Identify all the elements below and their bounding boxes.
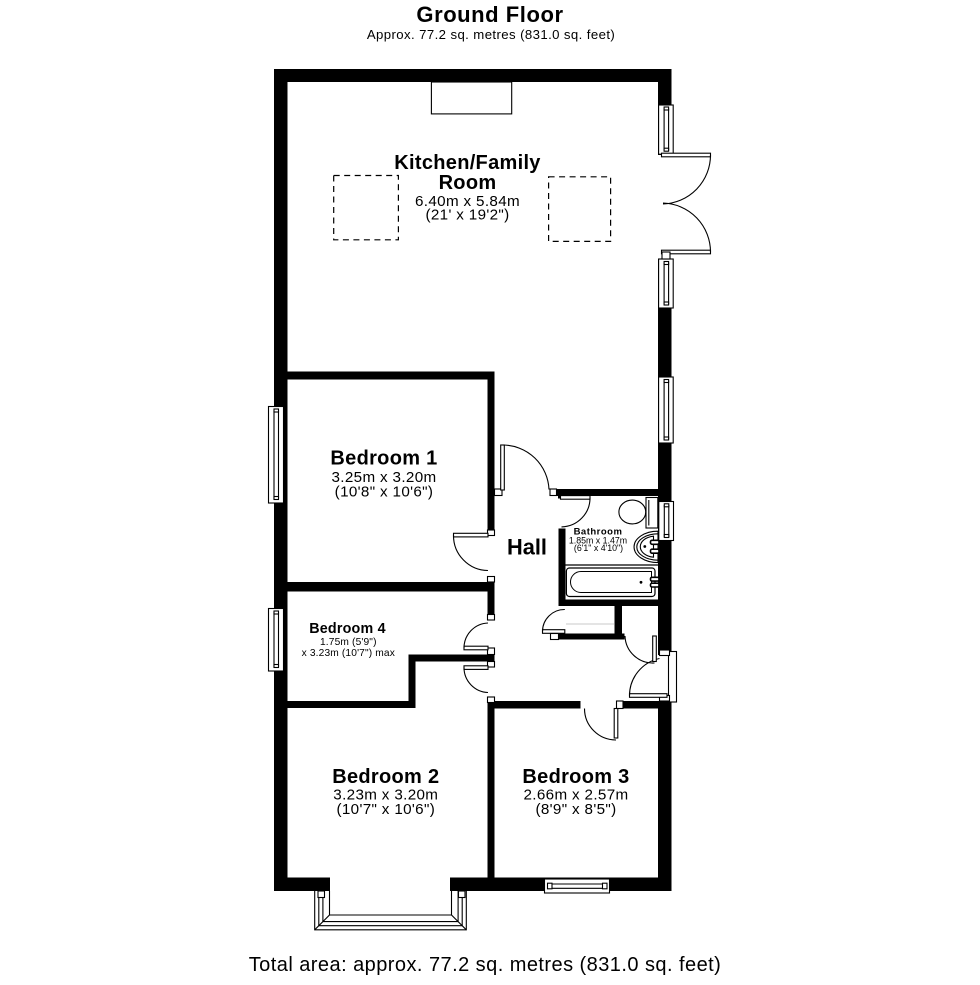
svg-text:(10'8" x 10'6"): (10'8" x 10'6") xyxy=(335,483,434,500)
svg-text:1.75m (5'9"): 1.75m (5'9") xyxy=(320,637,377,648)
svg-text:Hall: Hall xyxy=(507,535,547,560)
svg-text:Bedroom 1: Bedroom 1 xyxy=(330,447,437,469)
svg-text:(10'7" x 10'6"): (10'7" x 10'6") xyxy=(336,801,435,818)
svg-text:Approx. 77.2 sq. metres (831.0: Approx. 77.2 sq. metres (831.0 sq. feet) xyxy=(367,27,615,42)
svg-text:Kitchen/Family: Kitchen/Family xyxy=(394,152,541,174)
svg-text:Bedroom 3: Bedroom 3 xyxy=(522,766,629,788)
svg-text:Ground Floor: Ground Floor xyxy=(416,2,563,27)
svg-text:(21' x 19'2"): (21' x 19'2") xyxy=(425,207,509,224)
svg-text:Room: Room xyxy=(439,172,497,194)
svg-text:Bedroom 4: Bedroom 4 xyxy=(309,621,385,637)
svg-text:x 3.23m (10'7") max: x 3.23m (10'7") max xyxy=(302,648,395,659)
svg-text:Bedroom 2: Bedroom 2 xyxy=(332,766,439,788)
svg-text:(6'1" x 4'10"): (6'1" x 4'10") xyxy=(574,543,623,553)
svg-text:(8'9" x 8'5"): (8'9" x 8'5") xyxy=(535,801,616,818)
svg-text:Total area: approx. 77.2 sq. m: Total area: approx. 77.2 sq. metres (831… xyxy=(249,954,722,976)
